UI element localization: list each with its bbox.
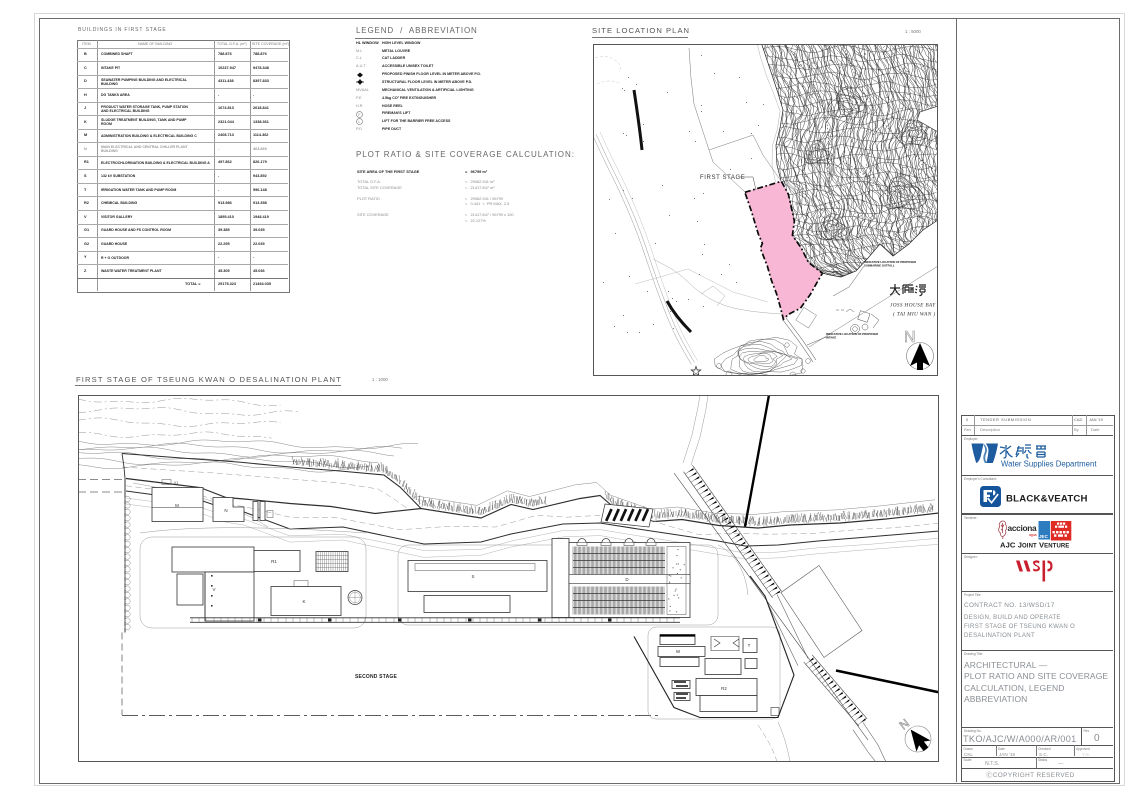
svg-text:L: L [358, 119, 361, 124]
svg-text:agua: agua [1029, 533, 1037, 537]
svg-text:Water Supplies Department: Water Supplies Department [1001, 460, 1097, 469]
svg-text:R1: R1 [271, 559, 277, 564]
svg-text:X1: X1 [174, 481, 178, 485]
svg-text:AJC JOINT VENTURE: AJC JOINT VENTURE [1000, 541, 1069, 550]
svg-text:R2: R2 [721, 686, 727, 691]
svg-text:acciona: acciona [1008, 523, 1037, 533]
svg-text:FIRST STAGE: FIRST STAGE [700, 175, 745, 181]
svg-text:SUBMARINE OUTFALL: SUBMARINE OUTFALL [864, 263, 895, 267]
svg-text:N: N [897, 716, 912, 732]
svg-text:M: M [175, 503, 179, 508]
svg-text:V: V [212, 587, 215, 592]
svg-text:JEC: JEC [1039, 534, 1049, 539]
svg-text:N: N [224, 508, 227, 513]
svg-text:SECOND STAGE: SECOND STAGE [355, 674, 397, 680]
svg-text:JOSS HOUSE BAY: JOSS HOUSE BAY [890, 302, 936, 308]
svg-text:T: T [748, 643, 751, 648]
svg-text:BLACK&VEATCH: BLACK&VEATCH [1006, 494, 1088, 505]
svg-text:F: F [358, 112, 361, 117]
svg-text:( TAI MIU WAN ): ( TAI MIU WAN ) [893, 310, 935, 317]
svg-text:INTAKE: INTAKE [826, 335, 836, 339]
svg-text:K: K [302, 599, 305, 604]
svg-text:S: S [471, 574, 474, 579]
svg-text:N: N [904, 329, 916, 346]
